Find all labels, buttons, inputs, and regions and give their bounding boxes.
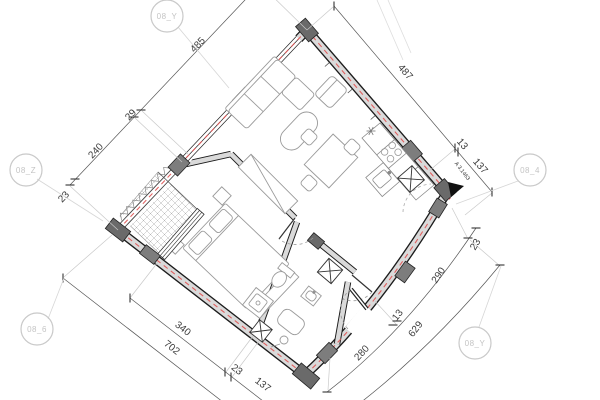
bed bbox=[183, 203, 301, 320]
grid-bubble-label: 08_4 bbox=[520, 166, 540, 175]
section-marker: A 3.1463 bbox=[448, 161, 471, 197]
grid-bubble-label: 08_Z bbox=[16, 166, 36, 175]
grid-bubble-label: 08_Y bbox=[157, 12, 178, 21]
wardrobe bbox=[238, 154, 297, 213]
context-lines bbox=[377, 0, 411, 60]
floor-plan-screenshot: A 3.1463 bbox=[0, 0, 600, 400]
grid-bubble-label: 08_6 bbox=[27, 325, 47, 334]
dim-label: 23 bbox=[56, 189, 72, 205]
armchair bbox=[314, 75, 348, 109]
nightstand bbox=[213, 187, 231, 205]
bedroom bbox=[158, 154, 301, 319]
dim-chain-se-outer bbox=[351, 265, 500, 400]
dim-chain-se-inner bbox=[327, 228, 476, 392]
bathtub bbox=[275, 307, 307, 337]
dim-label: 290 bbox=[430, 265, 449, 285]
bathroom-sink bbox=[301, 286, 322, 306]
coffee-table bbox=[276, 107, 322, 154]
dim-label: 240 bbox=[86, 141, 106, 161]
dim-label: 340 bbox=[173, 320, 193, 339]
dim-label: 629 bbox=[407, 319, 426, 339]
dim-label: 137 bbox=[470, 156, 490, 176]
dim-label: 487 bbox=[395, 62, 415, 82]
grid-bubble-label: 08_Y bbox=[465, 339, 486, 348]
dim-label: 137 bbox=[253, 376, 273, 395]
dim-chain-sw-outer bbox=[63, 278, 250, 400]
dining-chair bbox=[300, 174, 318, 192]
dim-label: 280 bbox=[352, 343, 372, 363]
floor-plan-canvas: A 3.1463 bbox=[0, 0, 600, 400]
dim-label: 702 bbox=[162, 339, 182, 358]
dim-label: 485 bbox=[188, 35, 208, 55]
